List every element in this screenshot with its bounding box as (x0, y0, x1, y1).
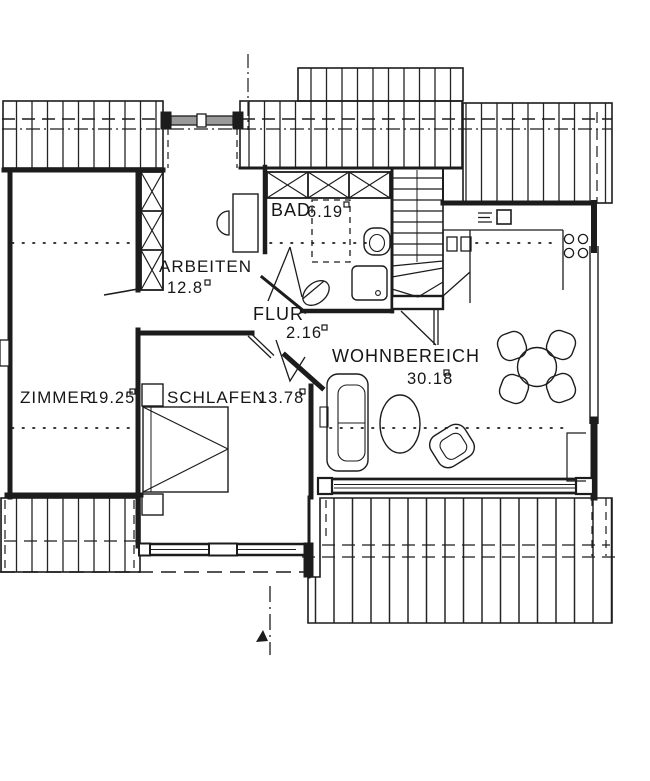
height-line-corner (567, 433, 586, 481)
terrace-band (308, 498, 612, 623)
shower-tray (352, 266, 387, 300)
coffee-table (380, 395, 420, 453)
label-arbeiten: ARBEITEN (159, 257, 252, 276)
label-flur: FLUR (253, 304, 304, 324)
nightstand-top (142, 384, 163, 406)
nightstand-bottom (142, 494, 163, 515)
roof-band-top-left (3, 101, 163, 168)
door-zimmer-leaf (104, 289, 138, 295)
bathroom-closet (267, 172, 390, 198)
section-marker (256, 586, 270, 655)
toilet (364, 228, 390, 255)
desk (233, 194, 258, 252)
sqm-symbol-flur (322, 325, 327, 330)
cooktop-burners (564, 234, 587, 257)
kitchen-vent-symbol (478, 210, 511, 224)
staircase (392, 168, 443, 297)
kitchen (443, 210, 588, 303)
area-zimmer: 19.25 (89, 389, 135, 407)
window-wohnbereich-bottom (318, 478, 593, 494)
sqm-symbol-bad (344, 202, 349, 207)
dormer-top (298, 68, 463, 101)
dining-chair-se (544, 371, 579, 406)
window-zimmer-left (0, 340, 9, 366)
kitchen-sink-basin-1 (447, 237, 457, 251)
area-arbeiten: 12.8 (167, 279, 203, 297)
sqm-symbol-arbeiten (205, 280, 210, 285)
dining-table (518, 348, 557, 387)
bed (143, 407, 228, 492)
area-bad: 6.19 (307, 203, 343, 221)
area-wohnbereich: 30.18 (407, 370, 453, 388)
kitchen-counter-end-diagonal (443, 272, 470, 296)
dining-chair-ne (544, 328, 579, 363)
armchair (426, 420, 479, 472)
door-wohnbereich (401, 310, 438, 345)
label-schlafen: SCHLAFEN (167, 388, 266, 407)
window-dormer-top (161, 112, 243, 129)
sofa (320, 374, 368, 471)
label-wohnbereich: WOHNBEREICH (332, 346, 480, 366)
dining-chair-sw (497, 372, 532, 407)
dining-table-set (495, 328, 579, 407)
wall-under-stairs (392, 296, 443, 309)
label-zimmer: ZIMMER (20, 388, 93, 407)
window-right-wall (590, 246, 598, 424)
section-arrow (256, 630, 268, 642)
roof-band-top-right (463, 103, 612, 203)
roof-band-bottom-left (1, 498, 140, 572)
area-schlafen: 13.78 (258, 389, 304, 407)
floor-plan-sheet: ZIMMER 19.25 SCHLAFEN 13.78 ARBEITEN 12.… (0, 0, 650, 781)
label-bad: BAD (271, 200, 311, 220)
area-flur: 2.16 (286, 324, 322, 342)
door-bad (268, 247, 302, 301)
dining-chair-nw (495, 329, 530, 364)
desk-chair (217, 211, 229, 235)
floor-plan-drawing: ZIMMER 19.25 SCHLAFEN 13.78 ARBEITEN 12.… (0, 0, 650, 781)
roof-band-top-middle (240, 101, 462, 168)
